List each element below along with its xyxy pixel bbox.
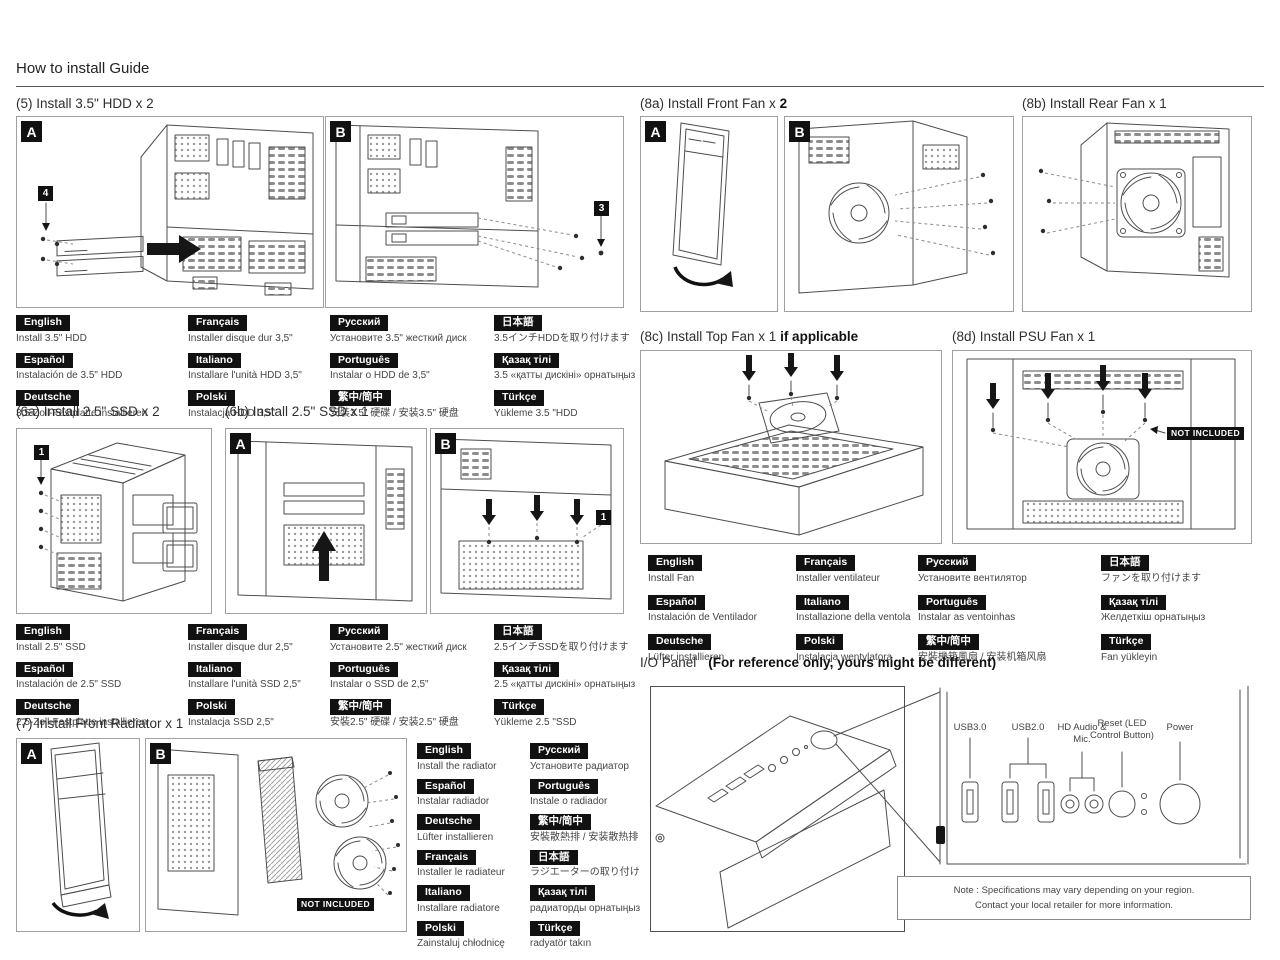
region-note-box: Note : Specifications may vary depending… <box>897 876 1251 920</box>
ssd-language-grid: EnglishInstall 2.5" SSD FrançaisInstalle… <box>16 622 640 728</box>
lang-item: EnglishInstall 2.5" SSD <box>16 622 188 653</box>
step-number-badge: 4 <box>38 186 53 201</box>
radiator-language-grid: EnglishInstall the radiator РусскийУстан… <box>417 741 660 949</box>
section-8c-title: (8c) Install Top Fan x 1 if applicable <box>640 329 858 344</box>
hdd-drives <box>57 236 143 276</box>
lang-item: 繁中/简中安裝散熱排 / 安装散热排 <box>530 812 660 843</box>
lang-item: EnglishInstall Fan <box>648 553 796 584</box>
diagram-5b-install-hdd <box>326 117 621 305</box>
step-pointer-arrow-icon <box>597 216 605 255</box>
radiator <box>258 757 302 883</box>
lang-item: 日本語3.5インチHDDを取り付けます <box>494 313 640 344</box>
lang-item: FrançaisInstaller ventilateur <box>796 553 918 584</box>
lang-item: DeutscheLüfter installieren <box>417 812 530 843</box>
lang-item: PolskiZainstaluj chłodnicę <box>417 919 530 950</box>
lang-item: РусскийУстановите 2.5" жесткий диск <box>330 622 494 653</box>
lang-item: РусскийУстановите радиатор <box>530 741 660 772</box>
panel-label-a: A <box>21 743 42 764</box>
section-5-title: (5) Install 3.5" HDD x 2 <box>16 96 154 111</box>
diagram-8d-install-psu-fan <box>953 351 1249 541</box>
label-connector-lines <box>970 738 1180 791</box>
detail-panel-edges <box>940 686 1248 864</box>
fan-icon <box>1067 439 1139 499</box>
step-pointer-arrow-icon <box>37 460 45 485</box>
port-label-usb2: USB2.0 <box>1000 722 1056 734</box>
section-8b-title: (8b) Install Rear Fan x 1 <box>1022 96 1167 111</box>
port-label-reset: Reset (LED Control Button) <box>1088 718 1156 742</box>
reset-button-icon <box>1109 791 1135 817</box>
lang-item: РусскийУстановите 3.5" жесткий диск <box>330 313 494 344</box>
lang-item: PortuguêsInstale o radiador <box>530 777 660 808</box>
audio-jacks-icon <box>1061 795 1103 813</box>
install-arrow-icons <box>482 495 584 525</box>
lang-item: FrançaisInstaller le radiateur <box>417 848 530 879</box>
hdd-language-grid: EnglishInstall 3.5" HDD FrançaisInstalle… <box>16 313 640 419</box>
note-line-2: Contact your local retailer for more inf… <box>898 900 1250 911</box>
screws <box>478 218 584 270</box>
lang-item: Қазақ тілі3.5 «қатты дискіні» орнатыңыз <box>494 351 640 382</box>
page-title: How to install Guide <box>16 60 149 77</box>
panel-label-b: B <box>435 433 456 454</box>
section-7-title: (7) Install Front Radiator x 1 <box>16 716 183 731</box>
panel-label-a: A <box>230 433 251 454</box>
not-included-pointer-icon <box>1150 426 1165 434</box>
diagram-8a-b-install-front-fan <box>785 117 1011 309</box>
lang-item: Қазақ тіліЖелдеткіш орнатыңыз <box>1101 593 1250 624</box>
panel-label-a: A <box>21 121 42 142</box>
section-8a-title: (8a) Install Front Fan x 2 <box>640 96 787 111</box>
screws <box>895 173 995 255</box>
screws <box>1039 169 1115 233</box>
lang-item: EnglishInstall 3.5" HDD <box>16 313 188 344</box>
diagram-8a-a-front-panel <box>641 117 775 309</box>
usb2-ports-icon <box>1002 782 1054 822</box>
io-panel-title: I/O Panel(For reference only, yours migh… <box>640 655 996 670</box>
port-label-usb3: USB3.0 <box>942 722 998 734</box>
lang-item: РусскийУстановите вентилятор <box>918 553 1101 584</box>
install-arrow-icons <box>742 353 844 381</box>
diagram-7a-front-panel <box>17 739 137 929</box>
lang-item: 日本語2.5インチSSDを取り付けます <box>494 622 640 653</box>
lang-item: Türkçeradyatör takın <box>530 919 660 950</box>
port-label-power: Power <box>1152 722 1208 734</box>
screws <box>362 771 400 895</box>
screws <box>39 491 59 555</box>
case-front-illustration <box>656 716 896 928</box>
fan-icon <box>316 775 368 827</box>
section-6a-title: (6a) Install 2.5" SSD x 2 <box>16 404 160 419</box>
lang-item: FrançaisInstaller disque dur 2,5" <box>188 622 330 653</box>
section-8d-title: (8d) Install PSU Fan x 1 <box>952 329 1095 344</box>
lang-item: FrançaisInstaller disque dur 3,5" <box>188 313 330 344</box>
lang-item: ItalianoInstallare l'unità SSD 2,5" <box>188 660 330 691</box>
diagram-8c-install-top-fan <box>641 351 939 541</box>
panel-label-b: B <box>330 121 351 142</box>
diagram-6b-b-panel: B <box>430 428 624 614</box>
power-button-icon <box>1160 784 1200 824</box>
lang-item: TürkçeYükleme 3.5 "HDD <box>494 388 640 419</box>
step-number-badge: 3 <box>594 201 609 216</box>
fan-language-grid: EnglishInstall Fan FrançaisInstaller ven… <box>648 553 1250 663</box>
install-guide-page: How to install Guide (5) Install 3.5" HD… <box>0 0 1280 960</box>
fan-icon <box>1117 169 1185 237</box>
diagram-8a-a-panel: A <box>640 116 778 312</box>
lang-item: ItalianoInstallazione della ventola <box>796 593 918 624</box>
lang-item: PortuguêsInstalar o SSD de 2,5" <box>330 660 494 691</box>
lang-item: 日本語ラジエーターの取り付け <box>530 848 660 879</box>
lang-item: EspañolInstalación de Ventilador <box>648 593 796 624</box>
lang-item: PolskiInstalacja SSD 2,5" <box>188 697 330 728</box>
step-number-badge: 1 <box>34 445 49 460</box>
note-line-1: Note : Specifications may vary depending… <box>898 885 1250 896</box>
section-6b-title: (6b) Install 2.5" SSD x 1 <box>225 404 369 419</box>
diagram-6b-b-install-ssd <box>431 429 621 611</box>
lang-item: Қазақ тілірадиаторды орнатыңыз <box>530 883 660 914</box>
ssd-drives <box>163 503 197 571</box>
diagram-7a-panel: A <box>16 738 140 932</box>
lang-item: ItalianoInstallare radiatore <box>417 883 530 914</box>
diagram-6b-a-install-ssd <box>226 429 424 611</box>
lang-item: EnglishInstall the radiator <box>417 741 530 772</box>
lang-item: 繁中/简中安裝2.5" 硬碟 / 安装2.5" 硬盘 <box>330 697 494 728</box>
lang-item: TürkçeYükleme 2.5 "SSD <box>494 697 640 728</box>
diagram-6b-a-panel: A <box>225 428 427 614</box>
lang-item: EspañolInstalación de 2.5" SSD <box>16 660 188 691</box>
lang-item: PortuguêsInstalar as ventoinhas <box>918 593 1101 624</box>
diagram-8d-panel <box>952 350 1252 544</box>
fan-icon <box>829 183 889 243</box>
panel-label-b: B <box>150 743 171 764</box>
fan-icon <box>334 837 386 889</box>
lang-item: 日本語ファンを取り付けます <box>1101 553 1250 584</box>
step-number-badge: 1 <box>596 510 611 525</box>
led-indicators-icon <box>1142 794 1147 815</box>
step-pointer-arrow-icon <box>42 203 50 231</box>
diagram-8b-install-rear-fan <box>1023 117 1249 309</box>
usb3-port-icon <box>962 782 978 822</box>
lang-item: Қазақ тілі2.5 «қатты дискіні» орнатыңыз <box>494 660 640 691</box>
diagram-8c-panel <box>640 350 942 544</box>
screws <box>747 381 839 411</box>
diagram-5a-install-hdd <box>17 117 321 305</box>
not-included-label: NOT INCLUDED <box>1167 427 1244 440</box>
diagram-5a-panel: A <box>16 116 324 308</box>
panel-label-a: A <box>645 121 666 142</box>
diagram-8a-b-panel: B <box>784 116 1014 312</box>
diagram-5b-panel: B <box>325 116 624 308</box>
header-divider <box>16 86 1264 87</box>
lang-item: PortuguêsInstalar o HDD de 3,5" <box>330 351 494 382</box>
side-port-icon <box>936 826 945 844</box>
not-included-label: NOT INCLUDED <box>297 898 374 911</box>
lang-item: EspañolInstalación de 3.5" HDD <box>16 351 188 382</box>
lang-item: TürkçeFan yükleyin <box>1101 632 1250 663</box>
rotate-arrow-icon <box>675 267 723 285</box>
panel-label-b: B <box>789 121 810 142</box>
lang-item: EspañolInstalar radiador <box>417 777 530 808</box>
lang-item: ItalianoInstallare l'unità HDD 3,5" <box>188 351 330 382</box>
diagram-8b-panel <box>1022 116 1252 312</box>
